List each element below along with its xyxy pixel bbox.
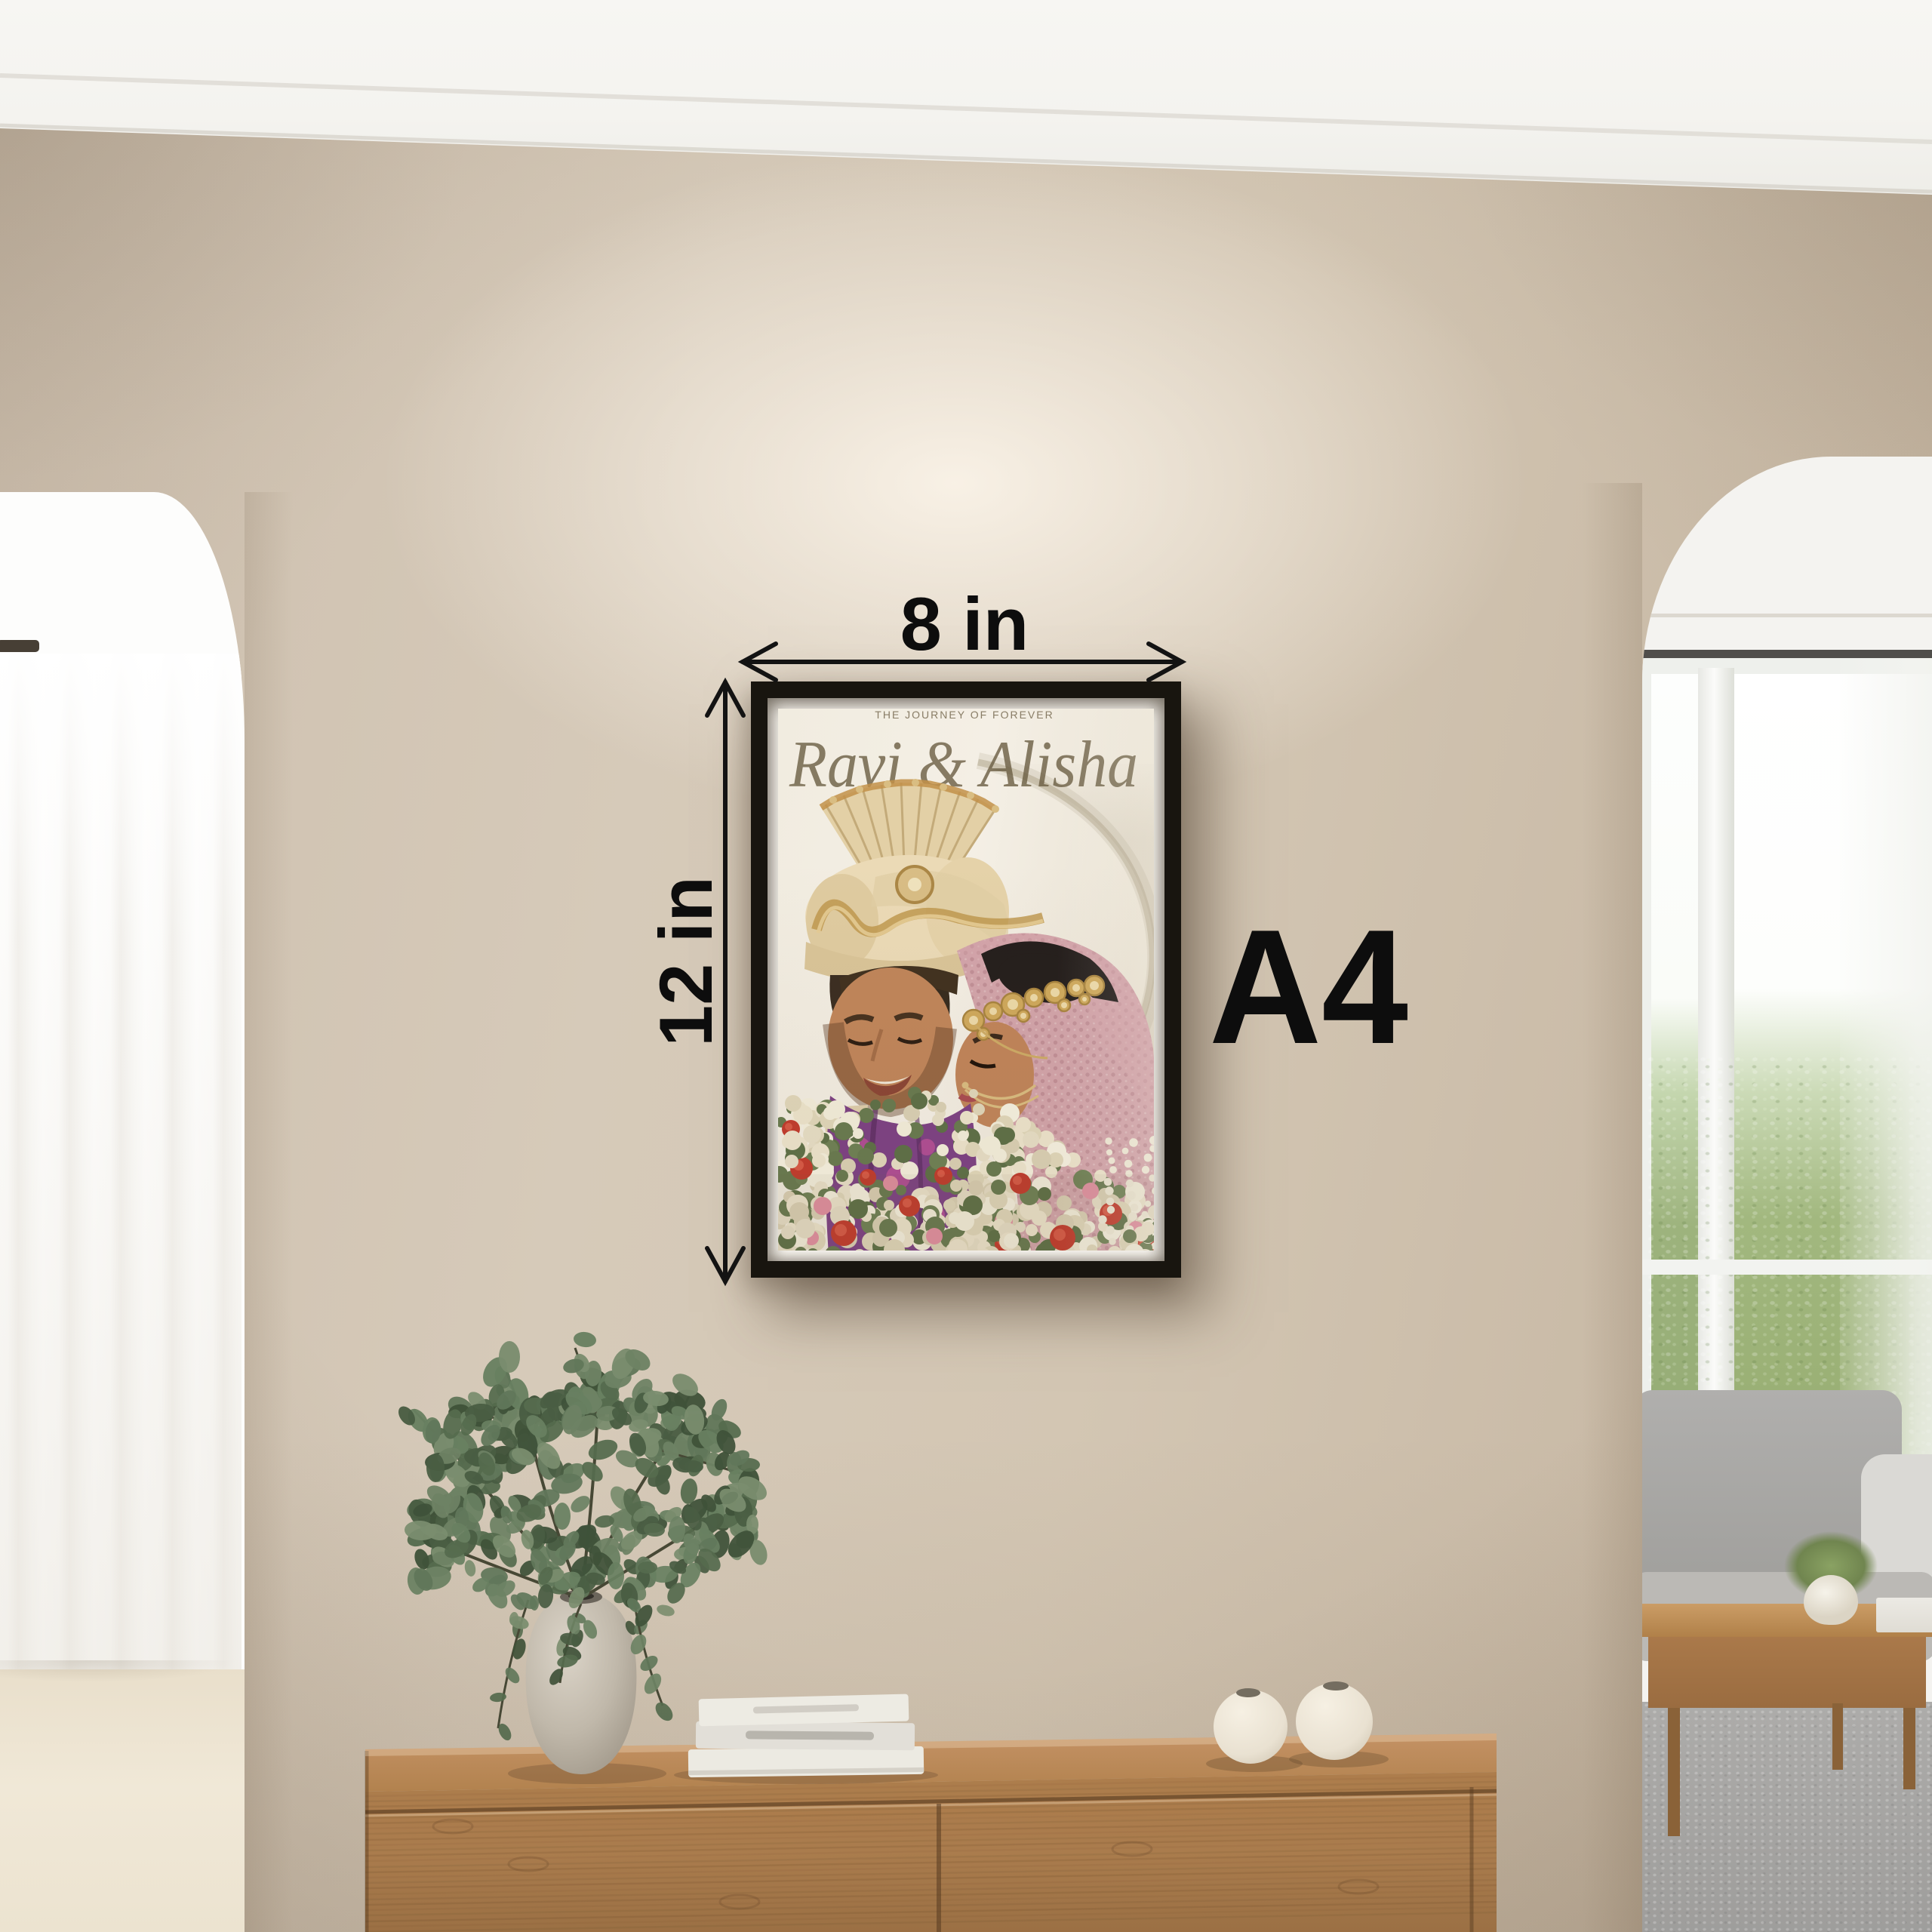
svg-text:12 in: 12 in xyxy=(644,876,728,1047)
svg-text:A4: A4 xyxy=(1209,895,1408,1078)
svg-text:8 in: 8 in xyxy=(900,582,1029,666)
